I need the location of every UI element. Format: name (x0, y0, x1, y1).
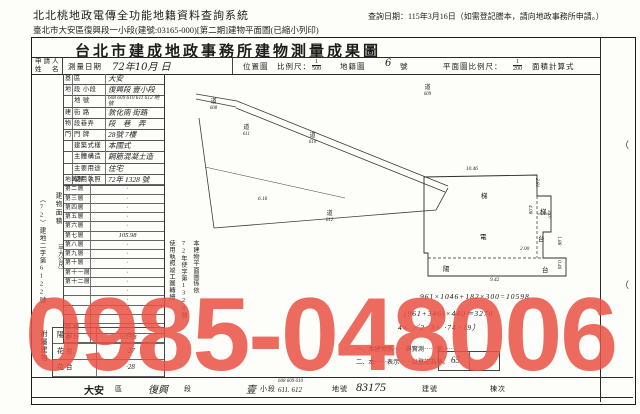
area-calculation-line: 4× ／2· 3× ·74 ·（9） (398, 322, 481, 333)
annex-row: 陽台 ·91 (53, 328, 164, 344)
header-separator (232, 58, 233, 74)
footer-section: 復興 (148, 381, 168, 396)
form-row: 物 段巷弄 段 巷 弄 (64, 119, 164, 130)
annex-side-label: 附屬建物 (39, 330, 49, 374)
floor-area-unit-label: （平方公尺） (56, 240, 64, 273)
cadastral-sheet-no: 6 (385, 58, 391, 69)
plan-dimension: 2.81 (534, 178, 540, 187)
footer-building-label: 建號 (422, 384, 438, 394)
plan-room-glyph: 梯 (540, 206, 547, 216)
stamp-box: 65 (438, 351, 500, 371)
plan-dimension: 2.00 (520, 246, 529, 252)
form-row: 主體構造 鋼筋混凝土造 (64, 152, 164, 163)
file-number: （72）建地二字第6122號 (36, 196, 46, 321)
form-row: 門 門 牌 28號 7樓 (64, 130, 164, 141)
plan-room-glyph: 陽 (443, 263, 450, 273)
plan-room-glyph: 梯 (481, 190, 488, 200)
footer-parcels-1: 608 609 610 (278, 379, 303, 384)
transcription-note-column: 72年使字第1328號 (179, 240, 188, 336)
form-row: 主要用途 住宅 (64, 164, 164, 175)
annex-row: 花台 ·27 (53, 344, 164, 360)
footer-district-label: 區 (115, 384, 123, 394)
form-row: 基 區 大安 (64, 74, 164, 85)
applicant-label: 申請人姓 名 (35, 58, 61, 74)
location-map-label: 位置圖 (243, 61, 269, 72)
footer-unit-label: 棟次 (490, 384, 506, 394)
parcel-label: 道611 (243, 126, 250, 137)
footer-parcel-strip: 大安 區 復興 段 壹 小段 608 609 610 611. 612 地號 8… (32, 377, 633, 398)
plan-dimension: 10.46 (466, 166, 478, 172)
floor-row: 第十一層 · (64, 269, 164, 278)
floor-area-side-label: 建物面積 (52, 192, 62, 226)
floor-row: 第五層 · (64, 213, 164, 222)
right-margin-divider (600, 38, 601, 402)
parcel-label: 道612 (326, 212, 333, 223)
cadastral-map-label: 地籍圖 (340, 61, 366, 72)
header-separator (62, 58, 63, 74)
cadastral-no-unit: 號 (400, 61, 409, 72)
plan-dimension: 0.46 (556, 260, 562, 269)
location-scale-fraction: 1500 (312, 59, 321, 72)
floor-area-table: 地面層 · 第二層 · 第三層 · 第四層 · 第五層 · 第六層 · 第七層 … (63, 176, 165, 343)
registry-printout-page: 北北桃地政電傳全功能地籍資料查詢系統 查詢日期：115年3月16日（如需登記謄本… (0, 0, 640, 414)
area-calc-label: 面積計算式 (532, 61, 575, 72)
floor-row: 第十二層 · (64, 278, 164, 287)
floor-plan-sketch (415, 160, 575, 285)
footer-subsection: 壹 (246, 381, 256, 396)
floor-row: 第七層 105.98 (64, 232, 164, 241)
fold-mark: （ (620, 278, 629, 291)
site-building-form: 基 區 大安 地 段 小段 復興段 壹小段 地 號 608 609 610 61… (63, 74, 165, 186)
plan-room-glyph: 台 (542, 264, 549, 274)
footer-building-no: 83175 (356, 380, 386, 395)
floor-row: 第十層 · (64, 259, 164, 268)
note-line: 二、本⋯⋯表示⋯⋯以登記為準。 (356, 357, 449, 366)
transcription-note-column: 使用執照竣工圖轉繪 (167, 240, 176, 336)
floor-row: 第三層 · (64, 195, 164, 204)
annex-table: 陽台 ·91 花台 ·27 花台 ·28 (52, 327, 165, 378)
transcription-note-column: 本建物平面圖係依 (191, 240, 200, 336)
footer-parcels-2: 611. 612 (278, 386, 302, 394)
sketch-dimension: 6.16 (258, 196, 267, 202)
parcel-label: 道610 (309, 134, 316, 145)
floor-row: 第六層 · (64, 222, 164, 231)
floor-row: 第四層 · (64, 204, 164, 213)
plan-dimension: 4.08 (527, 205, 533, 214)
floor-row: · (64, 315, 164, 324)
plan-dimension: 9.42 (490, 277, 499, 283)
plan-dimension: 1.88 (556, 236, 562, 245)
plan-scale-label: 平面圖比例尺： (443, 61, 503, 72)
parcel-label: 道609 (424, 86, 431, 97)
floor-row: · (64, 306, 164, 315)
footer-section-label: 段 (184, 384, 192, 394)
document-subtitle: 臺北市大安區復興段一小段(建號:03165-000)[第二期]建物平面圖(已縮小… (33, 24, 319, 36)
area-calculation-line: 961×1046+182×300=10598 (420, 292, 530, 301)
form-row: 建 街 路 敦化南 街路 (64, 108, 164, 119)
system-title: 北北桃地政電傳全功能地籍資料查詢系統 (33, 7, 249, 23)
footer-district: 大安 (84, 382, 104, 397)
floor-row: 第二層 · (64, 185, 164, 194)
query-date: 查詢日期：115年3月16日（如需登記謄本，請向地政事務所申請。） (368, 11, 604, 22)
floor-row: 第九層 · (64, 250, 164, 259)
footer-parcel-label: 地號 (332, 384, 348, 394)
survey-date-value: 72年10月 日 (112, 58, 171, 73)
survey-date-label: 測量日期 (68, 61, 102, 72)
scale-label: 比例尺： (277, 61, 311, 72)
location-map-sketch (190, 82, 450, 237)
floor-row: 地面層 · (64, 176, 164, 185)
footer-subsection-label: 小段 (260, 384, 276, 394)
plan-room-glyph: 電 (480, 231, 487, 241)
annex-row: 花台 ·28 (53, 360, 164, 376)
floor-row: · (64, 287, 164, 296)
floor-row: 第八層 · (64, 241, 164, 250)
floor-row: · (64, 296, 164, 305)
plan-room-glyph: 台 (538, 233, 545, 243)
form-row: 地 號 608 609 610 611 612 地號 (64, 96, 164, 107)
form-row: 建築式樣 本國式 (64, 141, 164, 152)
parcel-label: 道608 (210, 100, 217, 111)
plan-scale-fraction: 1200 (513, 59, 522, 72)
area-calculation-line: (961+346)×440＝3270 (404, 308, 493, 319)
stamp-box-value: 65 (451, 355, 460, 365)
transcription-note: 本建物平面圖係依72年使字第1328號使用執照竣工圖轉繪 (167, 240, 200, 336)
fold-mark: （ (620, 138, 629, 151)
